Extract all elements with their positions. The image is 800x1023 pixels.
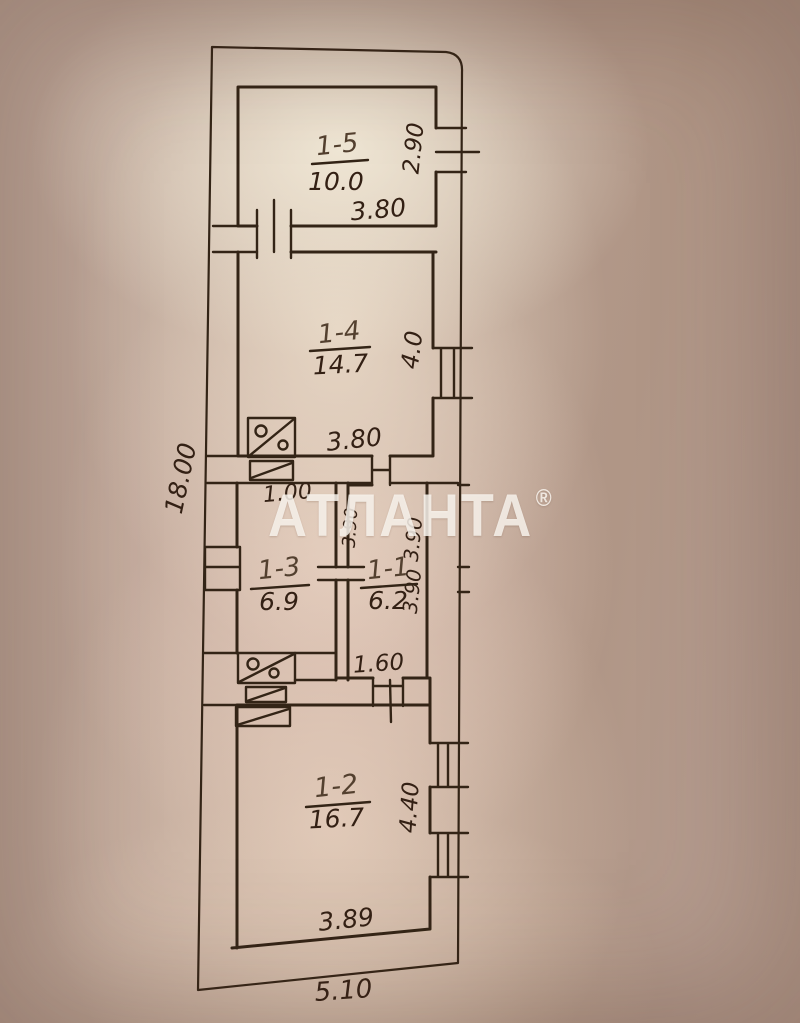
photo-vignette bbox=[0, 0, 800, 1023]
floor-plan-photo: 1-5 10.0 3.80 2.90 1-4 14.7 4.0 3.80 1.0… bbox=[0, 0, 800, 1023]
